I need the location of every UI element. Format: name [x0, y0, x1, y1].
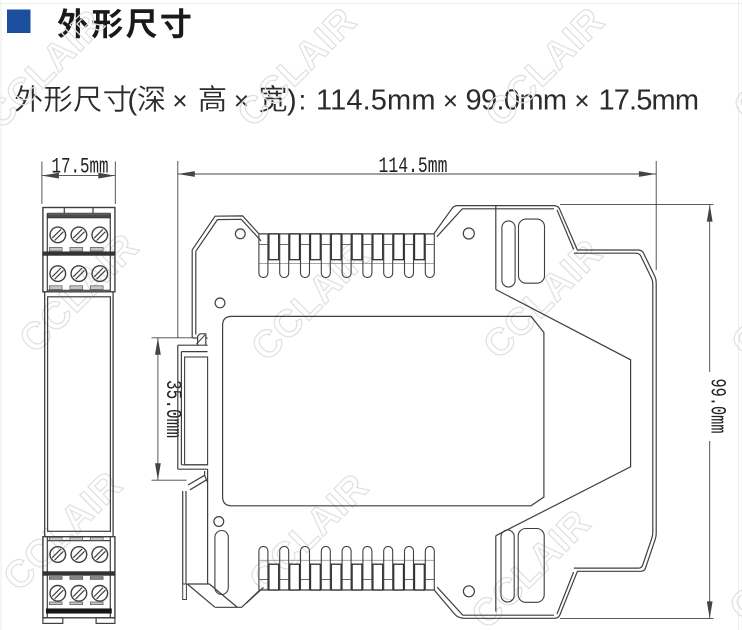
svg-text:CCLAIR: CCLAIR	[12, 226, 147, 361]
svg-text:99.0mm: 99.0mm	[705, 379, 730, 434]
svg-text:CCLAIR: CCLAIR	[724, 230, 742, 365]
svg-text:CCLAIR: CCLAIR	[726, 0, 742, 129]
svg-text:(: (	[128, 85, 138, 117]
svg-text:×: ×	[443, 86, 458, 116]
svg-text:114.5mm: 114.5mm	[316, 85, 436, 117]
svg-text:×: ×	[574, 86, 589, 116]
svg-text:17.5mm: 17.5mm	[52, 154, 109, 179]
svg-text:CCLAIR: CCLAIR	[464, 502, 599, 630]
svg-text:17.5mm: 17.5mm	[599, 85, 700, 117]
svg-text:×: ×	[172, 86, 187, 116]
svg-text:114.5mm: 114.5mm	[379, 154, 448, 179]
